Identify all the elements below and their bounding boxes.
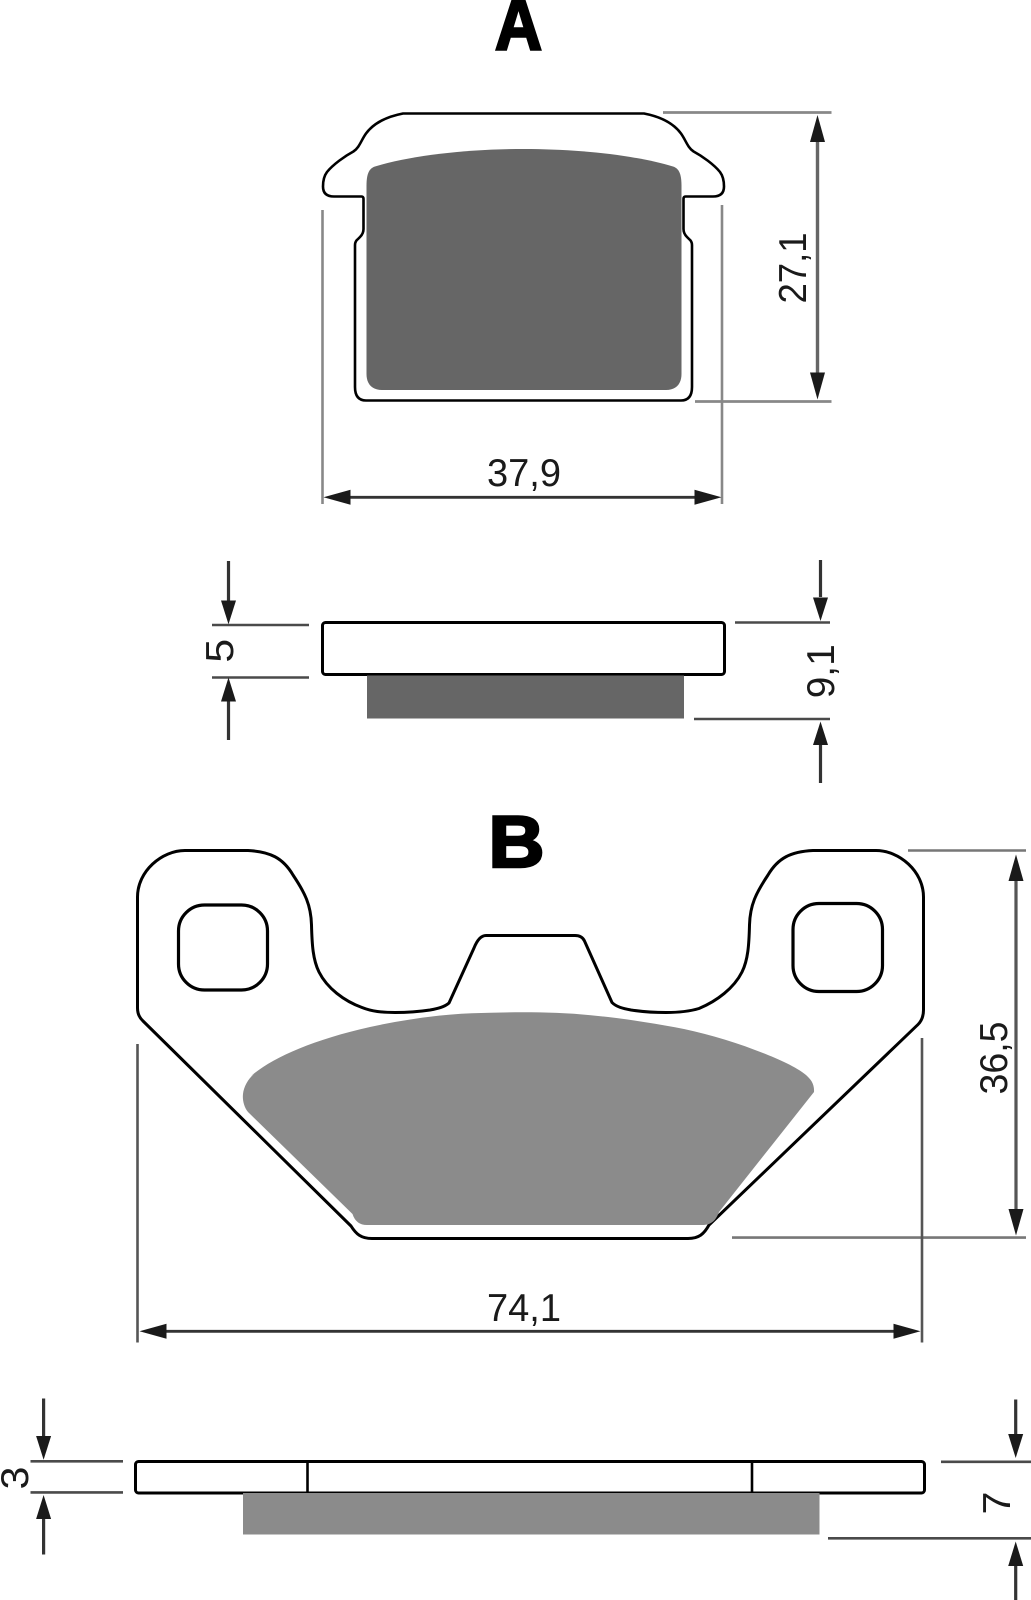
svg-text:7: 7: [976, 1492, 1019, 1515]
svg-text:A: A: [495, 0, 542, 66]
svg-text:3: 3: [0, 1467, 37, 1490]
svg-text:5: 5: [199, 639, 242, 663]
svg-text:B: B: [489, 802, 545, 883]
svg-text:37,9: 37,9: [487, 452, 561, 495]
svg-text:36,5: 36,5: [973, 1022, 1016, 1095]
svg-text:74,1: 74,1: [487, 1287, 561, 1330]
svg-text:9,1: 9,1: [800, 644, 843, 698]
svg-text:27,1: 27,1: [772, 233, 815, 304]
